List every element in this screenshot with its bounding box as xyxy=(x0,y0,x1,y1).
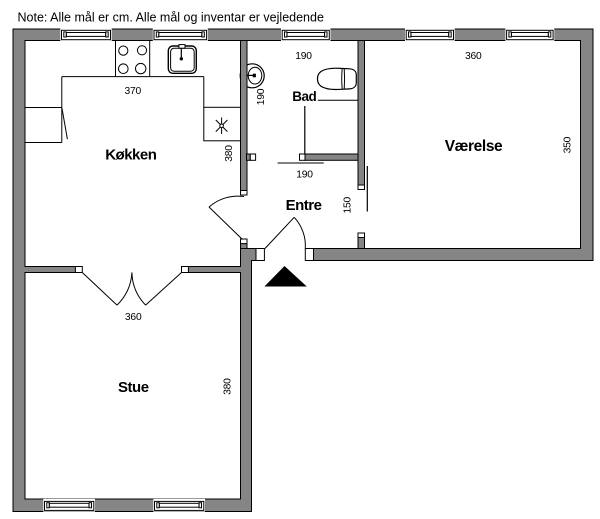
svg-text:Stue: Stue xyxy=(118,379,149,396)
svg-text:190: 190 xyxy=(295,51,312,62)
svg-text:Note: Alle mål er cm. Alle mål: Note: Alle mål er cm. Alle mål og invent… xyxy=(18,11,324,25)
svg-text:190: 190 xyxy=(256,88,267,105)
svg-text:370: 370 xyxy=(125,86,142,97)
svg-text:380: 380 xyxy=(222,378,233,395)
svg-text:360: 360 xyxy=(125,312,142,323)
svg-text:360: 360 xyxy=(465,51,482,62)
svg-text:Bad: Bad xyxy=(292,89,316,104)
svg-text:Køkken: Køkken xyxy=(105,147,157,164)
svg-text:190: 190 xyxy=(296,169,313,180)
svg-text:Entre: Entre xyxy=(286,197,322,214)
svg-text:150: 150 xyxy=(343,196,354,213)
svg-text:350: 350 xyxy=(562,136,573,153)
svg-text:380: 380 xyxy=(224,145,235,162)
svg-text:Værelse: Værelse xyxy=(445,138,503,155)
